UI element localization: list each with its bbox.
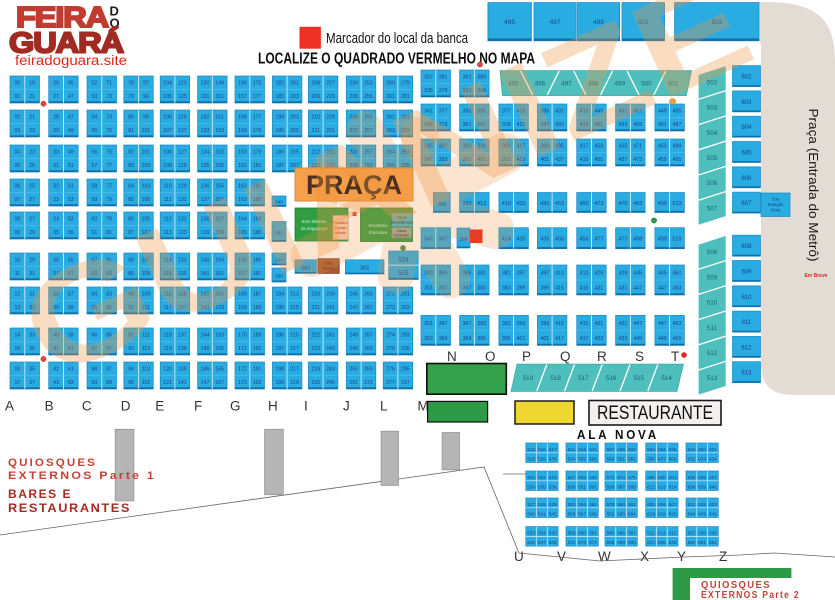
svg-text:95: 95 (128, 380, 134, 386)
svg-text:555: 555 (578, 457, 586, 462)
svg-text:447: 447 (633, 321, 642, 327)
svg-text:171: 171 (238, 346, 247, 352)
svg-text:49: 49 (68, 128, 74, 134)
svg-text:543: 543 (589, 447, 597, 452)
svg-text:385: 385 (477, 336, 486, 342)
svg-text:619: 619 (658, 512, 666, 517)
svg-text:EXTERNOS Parte 2: EXTERNOS Parte 2 (701, 590, 800, 600)
svg-text:607: 607 (669, 502, 677, 507)
svg-text:131: 131 (201, 94, 210, 100)
svg-text:504: 504 (707, 130, 718, 137)
svg-text:14: 14 (15, 333, 21, 339)
svg-text:Sua: Sua (772, 197, 780, 202)
svg-text:159: 159 (238, 128, 247, 134)
svg-text:626: 626 (698, 475, 706, 480)
svg-text:247: 247 (349, 305, 358, 311)
svg-text:23: 23 (29, 150, 35, 156)
svg-text:ALA NOVA: ALA NOVA (577, 428, 659, 442)
svg-text:611: 611 (647, 530, 655, 535)
svg-text:633: 633 (698, 457, 706, 462)
svg-text:25: 25 (29, 184, 35, 190)
svg-text:267: 267 (364, 305, 373, 311)
svg-text:217: 217 (290, 346, 299, 352)
svg-text:G: G (230, 399, 241, 414)
svg-text:B: B (45, 399, 54, 414)
svg-text:618: 618 (647, 512, 655, 517)
svg-text:277: 277 (386, 380, 395, 386)
svg-text:00: 00 (15, 81, 21, 87)
svg-text:512: 512 (707, 350, 718, 357)
svg-text:J: J (343, 399, 350, 414)
svg-text:103: 103 (142, 184, 151, 190)
svg-text:208: 208 (311, 81, 320, 87)
svg-text:145: 145 (201, 346, 210, 352)
svg-text:53: 53 (68, 197, 74, 203)
svg-text:55: 55 (92, 128, 98, 134)
svg-text:473: 473 (633, 157, 642, 163)
svg-text:594: 594 (658, 447, 666, 452)
svg-text:35: 35 (53, 230, 59, 236)
svg-text:125: 125 (178, 115, 187, 121)
svg-text:639: 639 (709, 530, 717, 535)
svg-text:58: 58 (92, 184, 98, 190)
svg-text:197: 197 (275, 346, 284, 352)
svg-text:165: 165 (215, 367, 224, 373)
svg-text:399: 399 (517, 321, 526, 327)
svg-text:399: 399 (517, 286, 526, 292)
svg-text:613: 613 (741, 371, 752, 377)
svg-text:235: 235 (349, 94, 358, 100)
svg-text:267: 267 (364, 333, 373, 339)
svg-text:RESTAURANTE: RESTAURANTE (597, 403, 713, 424)
svg-text:26: 26 (53, 81, 59, 87)
svg-text:N: N (447, 349, 457, 364)
svg-text:529: 529 (549, 502, 557, 507)
svg-text:Em Breve: Em Breve (804, 273, 827, 279)
svg-text:203: 203 (290, 115, 299, 121)
svg-text:156: 156 (238, 81, 247, 87)
svg-text:385: 385 (502, 336, 511, 342)
svg-text:177: 177 (253, 115, 262, 121)
svg-text:U: U (514, 549, 524, 564)
svg-text:EXTERNOS Parte 1: EXTERNOS Parte 1 (8, 470, 156, 482)
svg-text:612: 612 (741, 345, 752, 351)
svg-text:175: 175 (253, 81, 262, 87)
svg-text:620: 620 (698, 447, 706, 452)
svg-text:121: 121 (163, 380, 172, 386)
svg-text:586: 586 (617, 530, 625, 535)
svg-text:feiradoguara.site: feiradoguara.site (15, 53, 127, 68)
svg-text:638: 638 (698, 530, 706, 535)
svg-text:151: 151 (215, 94, 224, 100)
svg-text:612: 612 (658, 530, 666, 535)
svg-text:521: 521 (527, 475, 535, 480)
svg-text:177: 177 (253, 94, 262, 100)
svg-text:225: 225 (311, 380, 320, 386)
svg-text:Z: Z (719, 549, 727, 564)
svg-text:184: 184 (275, 115, 284, 121)
svg-text:498: 498 (658, 237, 667, 243)
svg-text:534: 534 (527, 485, 535, 490)
svg-text:53: 53 (92, 94, 98, 100)
svg-text:47: 47 (68, 115, 74, 121)
svg-text:185: 185 (275, 128, 284, 134)
svg-text:383: 383 (502, 286, 511, 292)
svg-text:234: 234 (349, 81, 358, 87)
svg-text:P: P (522, 349, 531, 364)
svg-text:157: 157 (238, 94, 247, 100)
svg-text:239: 239 (326, 292, 335, 298)
svg-text:554: 554 (578, 502, 586, 507)
svg-text:191: 191 (253, 346, 262, 352)
svg-text:W: W (598, 549, 611, 564)
svg-text:517: 517 (578, 375, 589, 382)
svg-text:508: 508 (707, 249, 718, 256)
svg-text:295: 295 (401, 367, 410, 373)
svg-text:626: 626 (669, 540, 677, 545)
svg-text:167: 167 (215, 380, 224, 386)
svg-text:651: 651 (698, 540, 706, 545)
svg-text:593: 593 (617, 512, 625, 517)
svg-text:49: 49 (68, 150, 74, 156)
svg-text:28: 28 (53, 115, 59, 121)
svg-text:580: 580 (617, 502, 625, 507)
svg-text:08: 08 (15, 217, 21, 223)
svg-text:84: 84 (128, 184, 134, 190)
svg-text:603: 603 (741, 100, 752, 106)
svg-text:477: 477 (594, 237, 603, 243)
svg-text:453: 453 (555, 201, 564, 207)
svg-text:101: 101 (142, 150, 151, 156)
svg-text:53: 53 (68, 217, 74, 223)
svg-text:413: 413 (580, 271, 589, 277)
svg-text:518: 518 (550, 375, 561, 382)
svg-text:07: 07 (15, 197, 21, 203)
svg-text:367: 367 (463, 321, 472, 327)
svg-text:594: 594 (628, 512, 636, 517)
svg-text:535: 535 (538, 485, 546, 490)
svg-text:595: 595 (669, 447, 677, 452)
svg-text:573: 573 (578, 540, 586, 545)
svg-text:613: 613 (658, 485, 666, 490)
svg-text:135: 135 (201, 163, 210, 169)
svg-text:21: 21 (29, 94, 35, 100)
svg-text:15: 15 (15, 346, 21, 352)
svg-text:79: 79 (106, 197, 112, 203)
svg-text:473: 473 (594, 201, 603, 207)
svg-text:534: 534 (538, 530, 546, 535)
svg-text:417: 417 (580, 336, 589, 342)
svg-text:203: 203 (290, 94, 299, 100)
svg-text:253: 253 (364, 81, 373, 87)
svg-text:413: 413 (555, 271, 564, 277)
svg-text:251: 251 (349, 380, 358, 386)
svg-text:461: 461 (673, 271, 682, 277)
svg-text:489: 489 (673, 144, 682, 150)
svg-text:397: 397 (517, 271, 526, 277)
svg-text:127: 127 (178, 150, 187, 156)
svg-text:463: 463 (673, 321, 682, 327)
svg-text:609: 609 (741, 270, 752, 276)
svg-text:562: 562 (589, 485, 597, 490)
svg-text:108: 108 (163, 150, 172, 156)
svg-text:29: 29 (29, 230, 35, 236)
svg-text:490: 490 (658, 201, 667, 207)
svg-text:34: 34 (53, 217, 59, 223)
svg-text:183: 183 (275, 94, 284, 100)
svg-text:353: 353 (424, 336, 433, 342)
svg-text:09: 09 (15, 230, 21, 236)
svg-text:548: 548 (549, 540, 557, 545)
svg-text:269: 269 (364, 367, 373, 373)
svg-text:433: 433 (516, 201, 525, 207)
svg-text:130: 130 (201, 81, 210, 87)
svg-text:31: 31 (53, 163, 59, 169)
svg-text:429: 429 (619, 271, 628, 277)
svg-text:604: 604 (741, 125, 752, 131)
svg-text:241: 241 (326, 333, 335, 339)
svg-text:56: 56 (92, 150, 98, 156)
svg-text:530: 530 (549, 457, 557, 462)
svg-text:541: 541 (538, 512, 546, 517)
svg-text:103: 103 (142, 163, 151, 169)
svg-text:132: 132 (201, 115, 210, 121)
svg-text:Y: Y (677, 549, 686, 564)
svg-text:217: 217 (290, 367, 299, 373)
svg-text:611: 611 (742, 320, 752, 326)
svg-text:139: 139 (178, 367, 187, 373)
svg-text:158: 158 (238, 115, 247, 121)
svg-text:149: 149 (215, 81, 224, 87)
svg-text:634: 634 (709, 457, 717, 462)
svg-text:547: 547 (568, 475, 576, 480)
svg-text:435: 435 (516, 237, 525, 243)
svg-text:516: 516 (606, 375, 617, 382)
svg-text:514: 514 (661, 375, 672, 382)
svg-text:519: 519 (672, 237, 681, 243)
svg-text:51: 51 (68, 163, 74, 169)
svg-text:215: 215 (290, 305, 299, 311)
svg-text:29: 29 (53, 128, 59, 134)
svg-text:491: 491 (673, 157, 682, 163)
svg-text:399: 399 (540, 286, 549, 292)
svg-text:631: 631 (688, 502, 696, 507)
svg-text:129: 129 (178, 163, 187, 169)
svg-text:51: 51 (68, 184, 74, 190)
svg-text:600: 600 (628, 540, 636, 545)
svg-text:450: 450 (580, 201, 589, 207)
svg-text:621: 621 (709, 447, 717, 452)
svg-text:437: 437 (619, 157, 628, 163)
svg-text:147: 147 (201, 380, 210, 386)
svg-text:599: 599 (617, 540, 625, 545)
svg-text:431: 431 (619, 286, 628, 292)
svg-text:381: 381 (502, 271, 511, 277)
svg-text:640: 640 (709, 485, 717, 490)
svg-text:260: 260 (386, 81, 395, 87)
svg-text:60: 60 (92, 217, 98, 223)
svg-text:16: 16 (15, 367, 21, 373)
svg-text:540: 540 (527, 512, 535, 517)
svg-text:30: 30 (53, 150, 59, 156)
svg-text:506: 506 (707, 180, 718, 187)
svg-text:568: 568 (617, 447, 625, 452)
svg-text:276: 276 (386, 367, 395, 373)
svg-text:465: 465 (673, 336, 682, 342)
svg-text:215: 215 (290, 333, 299, 339)
svg-text:367: 367 (439, 321, 448, 327)
svg-text:151: 151 (215, 115, 224, 121)
svg-text:449: 449 (658, 336, 667, 342)
svg-text:59: 59 (92, 197, 98, 203)
svg-text:245: 245 (326, 380, 335, 386)
svg-text:645: 645 (698, 512, 706, 517)
svg-text:73: 73 (106, 115, 112, 121)
svg-text:27: 27 (53, 94, 59, 100)
svg-text:542: 542 (549, 512, 557, 517)
svg-text:54: 54 (92, 115, 98, 121)
svg-text:644: 644 (688, 512, 696, 517)
svg-text:606: 606 (741, 176, 752, 182)
svg-text:397: 397 (540, 271, 549, 277)
svg-text:588: 588 (628, 485, 636, 490)
svg-text:153: 153 (215, 150, 224, 156)
svg-text:27: 27 (29, 217, 35, 223)
svg-text:85: 85 (128, 197, 134, 203)
svg-text:265: 265 (364, 292, 373, 298)
svg-text:Praça (Entrada do Metrô): Praça (Entrada do Metrô) (806, 108, 821, 261)
svg-text:567: 567 (578, 512, 586, 517)
svg-text:369: 369 (463, 336, 472, 342)
svg-text:527: 527 (527, 502, 535, 507)
svg-text:566: 566 (568, 512, 576, 517)
svg-text:574: 574 (617, 475, 625, 480)
svg-text:227: 227 (326, 81, 335, 87)
svg-text:573: 573 (607, 475, 615, 480)
svg-text:569: 569 (628, 447, 636, 452)
svg-text:106: 106 (163, 115, 172, 121)
svg-text:182: 182 (275, 81, 284, 87)
svg-text:613: 613 (669, 530, 677, 535)
svg-text:561: 561 (589, 530, 597, 535)
svg-text:99: 99 (143, 115, 149, 121)
svg-text:37: 37 (29, 380, 35, 386)
svg-text:453: 453 (658, 144, 667, 150)
svg-text:173: 173 (238, 380, 247, 386)
svg-text:567: 567 (607, 447, 615, 452)
svg-text:554: 554 (568, 457, 576, 462)
svg-text:586: 586 (607, 485, 615, 490)
svg-text:542: 542 (578, 447, 586, 452)
svg-text:75: 75 (106, 128, 112, 134)
svg-text:625: 625 (688, 475, 696, 480)
svg-text:45: 45 (68, 81, 74, 87)
svg-text:456: 456 (580, 237, 589, 243)
svg-text:447: 447 (658, 321, 667, 327)
svg-text:650: 650 (688, 540, 696, 545)
svg-text:587: 587 (617, 485, 625, 490)
svg-text:415: 415 (555, 321, 564, 327)
svg-text:F: F (194, 399, 202, 414)
svg-text:606: 606 (658, 502, 666, 507)
svg-text:620: 620 (669, 512, 677, 517)
svg-text:196: 196 (275, 333, 284, 339)
svg-text:415: 415 (580, 321, 589, 327)
svg-text:383: 383 (477, 286, 486, 292)
svg-text:25: 25 (29, 163, 35, 169)
svg-text:431: 431 (594, 321, 603, 327)
svg-text:222: 222 (311, 333, 320, 339)
svg-text:47: 47 (68, 94, 74, 100)
svg-text:417: 417 (555, 336, 564, 342)
svg-text:593: 593 (647, 447, 655, 452)
svg-text:189: 189 (253, 333, 262, 339)
svg-text:295: 295 (401, 346, 410, 352)
svg-text:198: 198 (275, 367, 284, 373)
svg-text:637: 637 (688, 530, 696, 535)
svg-text:191: 191 (253, 367, 262, 373)
svg-text:05: 05 (15, 163, 21, 169)
svg-text:221: 221 (311, 305, 320, 311)
svg-text:I: I (304, 399, 308, 414)
svg-text:383: 383 (477, 321, 486, 327)
svg-text:274: 274 (386, 333, 395, 339)
svg-text:517: 517 (549, 447, 557, 452)
svg-text:123: 123 (178, 81, 187, 87)
svg-text:80: 80 (128, 115, 134, 121)
svg-text:L: L (380, 399, 388, 414)
svg-text:219: 219 (290, 380, 299, 386)
svg-text:127: 127 (178, 128, 187, 134)
svg-text:624: 624 (647, 540, 655, 545)
svg-text:605: 605 (741, 151, 752, 157)
svg-text:627: 627 (709, 475, 717, 480)
svg-text:52: 52 (92, 81, 98, 87)
svg-text:06: 06 (15, 184, 21, 190)
svg-text:632: 632 (688, 457, 696, 462)
svg-text:273: 273 (386, 305, 395, 311)
svg-text:513: 513 (707, 375, 718, 382)
svg-text:610: 610 (741, 295, 752, 301)
svg-text:Estação: Estação (768, 202, 784, 207)
svg-text:03: 03 (15, 128, 21, 134)
svg-text:T: T (671, 349, 679, 364)
svg-text:585: 585 (607, 530, 615, 535)
svg-text:575: 575 (628, 475, 636, 480)
svg-text:548: 548 (578, 475, 586, 480)
svg-text:133: 133 (201, 128, 210, 134)
svg-text:35: 35 (29, 367, 35, 373)
svg-text:401: 401 (517, 336, 526, 342)
svg-text:32: 32 (53, 184, 59, 190)
svg-text:R: R (597, 349, 607, 364)
svg-text:220: 220 (311, 292, 320, 298)
svg-text:201: 201 (290, 81, 299, 87)
svg-text:243: 243 (326, 346, 335, 352)
svg-text:141: 141 (178, 380, 187, 386)
svg-text:75: 75 (106, 150, 112, 156)
svg-text:RESTAURANTES: RESTAURANTES (8, 501, 131, 515)
svg-text:592: 592 (607, 512, 615, 517)
svg-text:153: 153 (215, 128, 224, 134)
svg-text:445: 445 (658, 271, 667, 277)
svg-text:546: 546 (527, 540, 535, 545)
svg-text:241: 241 (326, 305, 335, 311)
svg-text:495: 495 (504, 19, 515, 26)
svg-text:600: 600 (658, 475, 666, 480)
svg-text:516: 516 (538, 447, 546, 452)
svg-text:574: 574 (589, 540, 597, 545)
